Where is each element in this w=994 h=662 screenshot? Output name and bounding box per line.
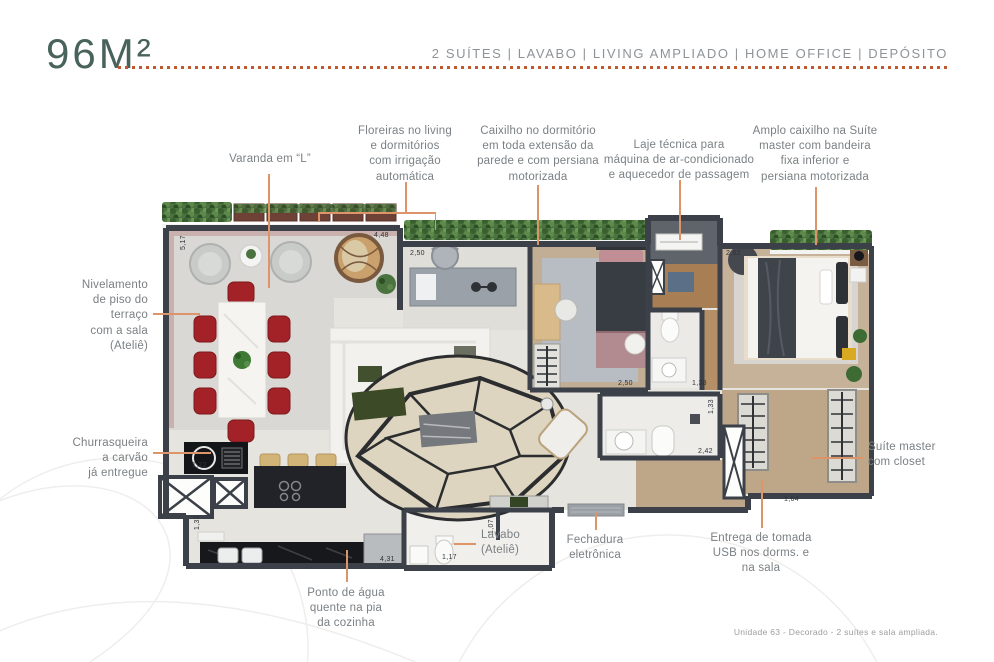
leader-line (318, 212, 436, 214)
leader-line (318, 212, 320, 222)
leader-line (812, 457, 864, 459)
annotation-tomada-usb: Entrega de tomada USB nos dorms. e na sa… (690, 531, 832, 577)
leader-line (405, 182, 407, 213)
leader-line (679, 180, 681, 240)
dimension-label: 1,33 (708, 399, 715, 414)
dimension-label: 1,32 (194, 515, 201, 530)
annotation-churrasqueira: Churrasqueira a carvão já entregue (56, 436, 148, 482)
annotation-ponto-agua: Ponto de água quente na pia da cozinha (286, 586, 406, 632)
annotation-suite-master: Suíte master com closet (868, 440, 960, 470)
header-feature-list: 2 SUÍTES | LAVABO | LIVING AMPLIADO | HO… (432, 46, 948, 61)
dimension-label: 4,48 (374, 232, 389, 239)
deposit-shaft (724, 426, 744, 498)
leader-line (435, 212, 437, 230)
dimension-label: 1,38 (692, 380, 707, 387)
leader-line (346, 550, 348, 582)
page-title-area: 96M² (46, 30, 154, 78)
dimension-label: 5,17 (180, 235, 187, 250)
leader-line (268, 174, 270, 288)
leader-line (595, 512, 597, 530)
dimension-label: 2,62 (726, 250, 741, 257)
dimension-label: 2,50 (618, 380, 633, 387)
dimension-label: 2,50 (410, 250, 425, 257)
dimension-label: 2,42 (698, 448, 713, 455)
dimension-label: 1,17 (442, 554, 457, 561)
floor-plan: 5,17 4,48 2,50 2,50 1,38 2,62 1,33 2,42 … (158, 198, 874, 574)
leader-line (537, 185, 539, 245)
annotation-floreiras: Floreiras no living e dormitórios com ir… (345, 124, 465, 185)
footer-caption: Unidade 63 - Decorado - 2 suítes e sala … (734, 627, 938, 637)
annotation-caixilho-dormitorio: Caixilho no dormitório em toda extensão … (474, 124, 602, 185)
annotation-varanda: Varanda em “L” (210, 152, 330, 167)
annotation-amplo-caixilho: Amplo caixilho na Suíte master com bande… (745, 124, 885, 185)
brochure-page: { "header": { "area": "96M²", "features"… (0, 0, 994, 662)
dimension-label: 1,22 (192, 462, 207, 469)
annotation-fechadura: Fechadura eletrônica (545, 533, 645, 563)
leader-line (153, 452, 211, 454)
dimension-label: 1,64 (784, 496, 799, 503)
leader-line (454, 543, 476, 545)
floor-plan-graphic (158, 198, 874, 574)
leader-line (815, 187, 817, 245)
dotted-divider (118, 66, 948, 69)
annotation-nivelamento: Nivelamento de piso do terraço com a sal… (58, 278, 148, 354)
annotation-laje-tecnica: Laje técnica para máquina de ar-condicio… (601, 138, 757, 184)
leader-line (153, 313, 200, 315)
dimension-label: 4,31 (380, 556, 395, 563)
leader-line (761, 480, 763, 528)
